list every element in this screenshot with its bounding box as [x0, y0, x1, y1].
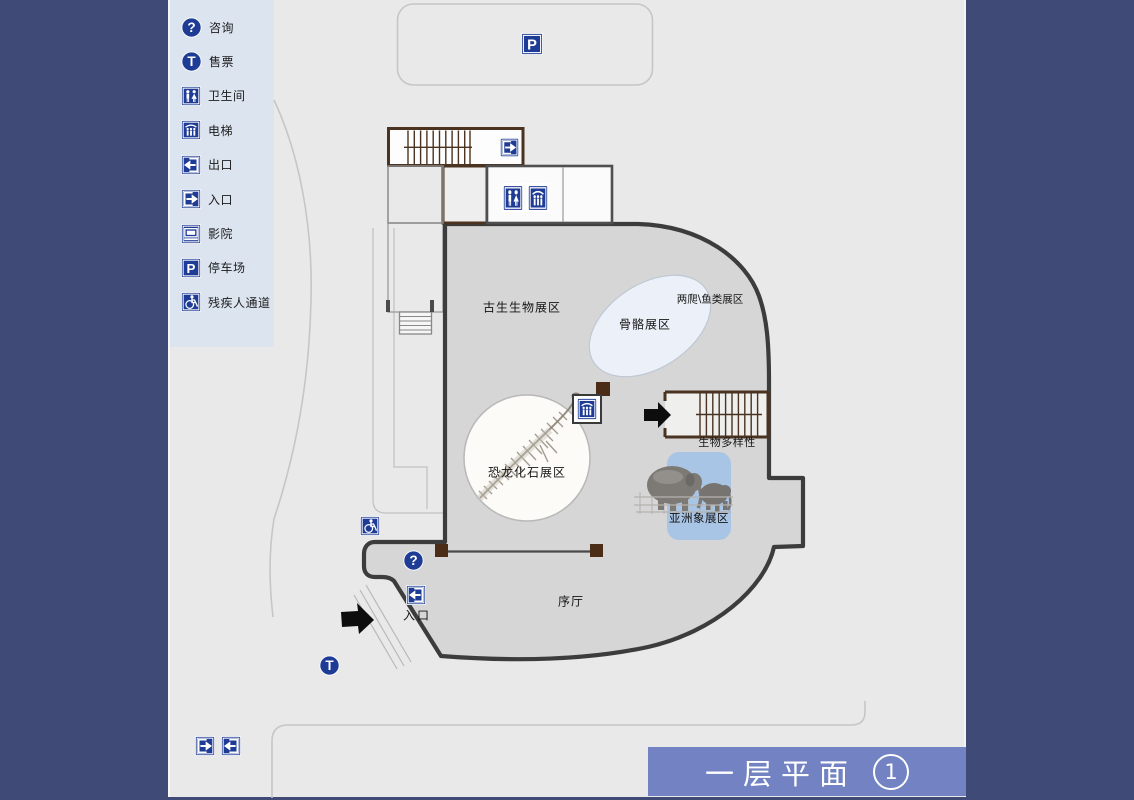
legend-label: 残疾人通道 [208, 294, 271, 311]
entrance-icon [195, 736, 215, 756]
parking-icon [521, 33, 543, 55]
area-label-skeleton: 骨骼展区 [619, 316, 671, 333]
legend-item-info: 咨询 [170, 10, 274, 44]
restroom-icon [181, 86, 201, 106]
legend-panel: 咨询 售票 卫生间 电梯 出口 入口 影院 停车场 [170, 0, 274, 347]
elevator-icon [181, 120, 201, 140]
area-label-amphibian-fish: 两爬\鱼类展区 [677, 292, 744, 307]
page-title: 一层平面 [705, 751, 857, 793]
parking-icon [181, 258, 201, 278]
legend-label: 电梯 [208, 122, 233, 139]
elevator-icon [526, 183, 549, 212]
legend-item-entrance: 入口 [170, 182, 274, 216]
legend-label: 停车场 [208, 259, 246, 276]
area-label-foyer: 序厅 [558, 593, 584, 610]
legend-item-restroom: 卫生间 [170, 79, 274, 113]
entrance-icon [500, 138, 519, 157]
area-label-asian-elephant: 亚洲象展区 [669, 510, 729, 526]
area-label-biodiversity: 生物多样性 [698, 434, 756, 450]
restroom-icon [501, 183, 524, 212]
entrance-label: 入口 [403, 607, 431, 624]
legend-label: 入口 [208, 191, 233, 208]
floor-plan-page: 咨询 售票 卫生间 电梯 出口 入口 影院 停车场 [0, 0, 1134, 800]
legend-label: 咨询 [209, 19, 234, 36]
info-icon [403, 550, 424, 571]
entrance-icon [181, 189, 201, 209]
exit-icon [221, 736, 241, 756]
wheelchair-icon [360, 516, 380, 536]
cinema-icon [181, 224, 201, 244]
title-banner: 一层平面 1 [648, 747, 966, 796]
legend-label: 售票 [209, 53, 234, 70]
exit-icon [181, 155, 201, 175]
entrance-icon [406, 585, 426, 605]
legend-item-ticket: 售票 [170, 44, 274, 78]
elevator-icon [577, 398, 597, 420]
area-label-dinosaur: 恐龙化石展区 [488, 464, 566, 481]
legend-label: 影院 [208, 225, 233, 242]
legend-item-cinema: 影院 [170, 216, 274, 250]
area-label-paleontology: 古生生物展区 [483, 299, 561, 316]
legend-item-parking: 停车场 [170, 251, 274, 285]
legend-label: 出口 [208, 156, 233, 173]
ticket-icon [181, 51, 202, 72]
ticket-icon [319, 655, 340, 676]
legend-item-accessible: 残疾人通道 [170, 285, 274, 319]
info-icon [181, 17, 202, 38]
map-content-area [168, 0, 966, 797]
legend-item-exit: 出口 [170, 148, 274, 182]
elevator-box [572, 394, 602, 424]
legend-label: 卫生间 [208, 87, 246, 104]
legend-item-elevator: 电梯 [170, 113, 274, 147]
wheelchair-icon [181, 292, 201, 312]
floor-number-badge: 1 [873, 754, 909, 790]
